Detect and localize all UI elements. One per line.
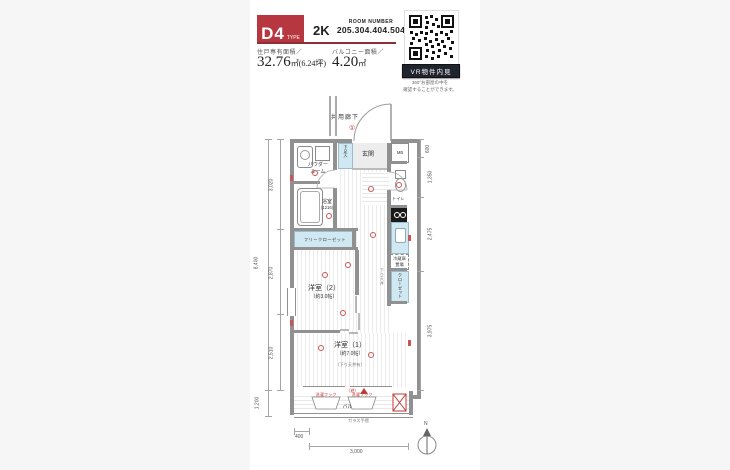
dim-tick xyxy=(277,139,284,140)
dim-tick xyxy=(417,197,424,198)
dim-tick xyxy=(265,139,272,140)
dim-left-balcony: 1,200 xyxy=(254,397,260,410)
dim-tick xyxy=(417,271,424,272)
dim-tick xyxy=(309,443,310,450)
dim-right-seg4: 3,975 xyxy=(427,325,433,338)
dim-tick xyxy=(309,428,310,435)
light-symbol xyxy=(396,182,402,188)
dim-left-seg1: 3,020 xyxy=(268,179,274,192)
dim-line xyxy=(268,391,269,417)
outlet-symbol xyxy=(408,340,411,346)
dim-right-seg1: 600 xyxy=(425,145,431,153)
outlet-symbol xyxy=(290,175,293,181)
dim-tick xyxy=(417,139,424,140)
light-symbol xyxy=(345,262,351,268)
dim-left-seg2: 2,870 xyxy=(268,267,274,280)
light-symbol xyxy=(322,272,328,278)
dim-tick xyxy=(277,390,284,391)
plan-overlay xyxy=(0,0,730,470)
dim-line xyxy=(309,446,408,447)
dim-tick xyxy=(265,416,272,417)
light-symbol xyxy=(318,345,324,351)
dim-right-seg3: 2,475 xyxy=(427,228,433,241)
dim-line xyxy=(420,139,421,391)
dim-tick xyxy=(417,390,424,391)
light-symbol xyxy=(368,186,374,192)
dim-left-seg3: 2,510 xyxy=(268,347,274,360)
compass-n-label: N xyxy=(424,421,428,427)
light-symbol xyxy=(340,310,346,316)
light-symbol xyxy=(370,232,376,238)
dim-line xyxy=(280,139,281,391)
dim-tick xyxy=(277,229,284,230)
dim-tick xyxy=(417,157,424,158)
floorplan-page: D4 TYPE 2K ROOM NUMBER 205.304.404.504 住… xyxy=(0,0,730,470)
light-symbol xyxy=(326,213,332,219)
dim-line xyxy=(294,431,309,432)
dim-tick xyxy=(408,443,409,450)
light-symbol xyxy=(312,170,318,176)
dim-bottom-offset: 400 xyxy=(295,434,303,440)
dim-right-seg2: 1,350 xyxy=(427,171,433,184)
dim-bottom-width: 3,000 xyxy=(350,449,363,455)
dim-left-total: 8,400 xyxy=(253,257,259,270)
light-symbol xyxy=(368,352,374,358)
dim-tick xyxy=(277,314,284,315)
outlet-symbol xyxy=(290,320,293,326)
outlet-symbol xyxy=(408,235,411,241)
